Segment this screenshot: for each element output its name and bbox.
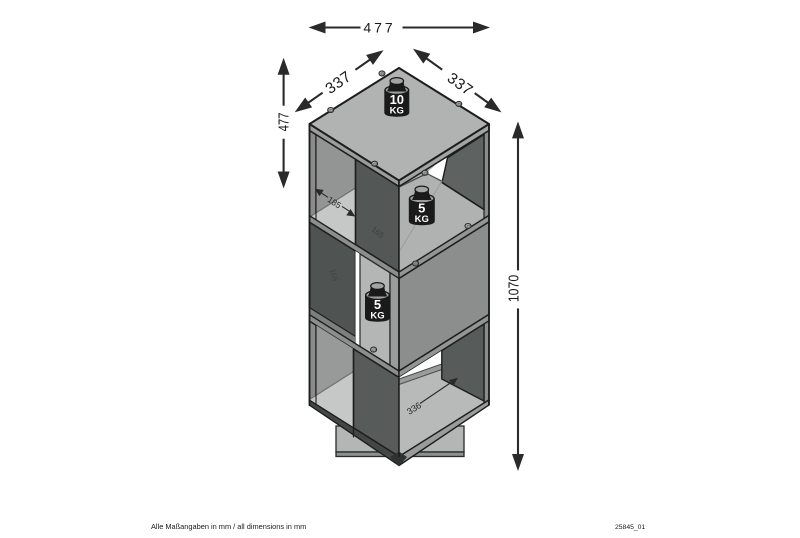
- svg-text:477: 477: [275, 113, 292, 132]
- svg-text:KG: KG: [415, 214, 429, 225]
- svg-text:KG: KG: [370, 311, 384, 322]
- svg-text:KG: KG: [390, 106, 404, 117]
- svg-text:25845_01: 25845_01: [615, 524, 645, 531]
- svg-text:1070: 1070: [505, 274, 521, 302]
- svg-text:477: 477: [363, 20, 395, 36]
- svg-text:Alle Maßangaben in mm / all di: Alle Maßangaben in mm / all dimensions i…: [151, 522, 306, 531]
